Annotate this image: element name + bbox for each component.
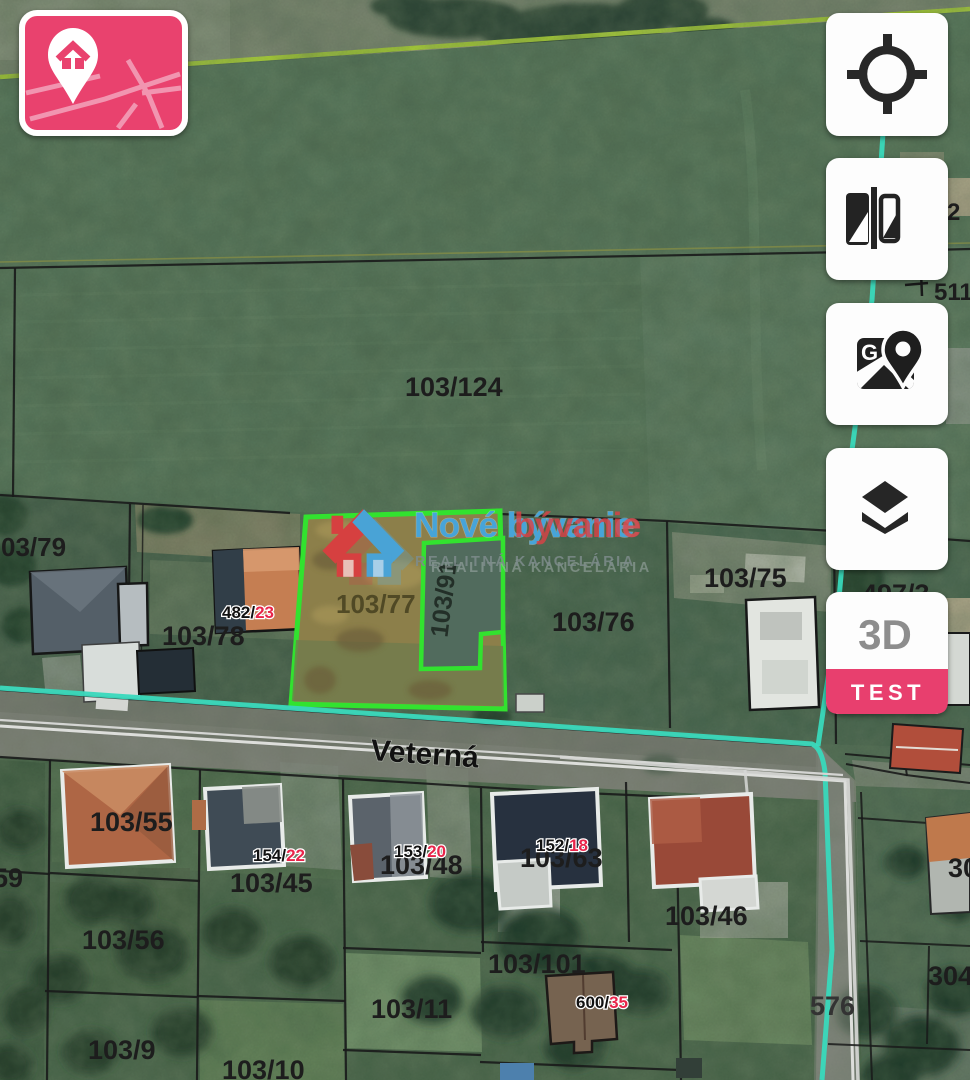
svg-text:103/76: 103/76 [552, 607, 635, 637]
svg-text:103/77: 103/77 [336, 589, 416, 619]
svg-text:103/45: 103/45 [230, 868, 313, 898]
svg-text:304: 304 [928, 961, 970, 991]
svg-text:482/23: 482/23 [222, 603, 274, 622]
svg-text:103/9: 103/9 [88, 1035, 156, 1065]
svg-text:2: 2 [947, 199, 960, 226]
svg-text:REALITNÁ KANCELÁRIA: REALITNÁ KANCELÁRIA [415, 553, 636, 570]
svg-text:G: G [861, 340, 878, 365]
svg-text:103/75: 103/75 [704, 563, 787, 593]
svg-text:103/46: 103/46 [665, 901, 748, 931]
svg-text:153/20: 153/20 [394, 842, 446, 861]
svg-text:03/79: 03/79 [1, 532, 66, 562]
svg-text:103/78: 103/78 [162, 621, 245, 651]
svg-text:30: 30 [948, 853, 970, 883]
svg-text:59: 59 [0, 863, 23, 893]
svg-text:103/124: 103/124 [405, 372, 503, 402]
svg-text:152/18: 152/18 [536, 836, 588, 855]
svg-text:154/22: 154/22 [253, 846, 305, 865]
svg-text:103/56: 103/56 [82, 925, 165, 955]
svg-text:576: 576 [810, 991, 855, 1021]
svg-text:600/35: 600/35 [576, 993, 628, 1012]
svg-text:103/55: 103/55 [90, 807, 173, 837]
svg-text:103/10: 103/10 [222, 1055, 305, 1080]
svg-text:511: 511 [934, 279, 970, 306]
svg-text:103/101: 103/101 [488, 949, 586, 979]
svg-text:3D: 3D [858, 611, 912, 658]
svg-text:103/11: 103/11 [371, 994, 452, 1024]
svg-text:TEST: TEST [851, 680, 925, 705]
svg-text:e: e [621, 506, 640, 545]
